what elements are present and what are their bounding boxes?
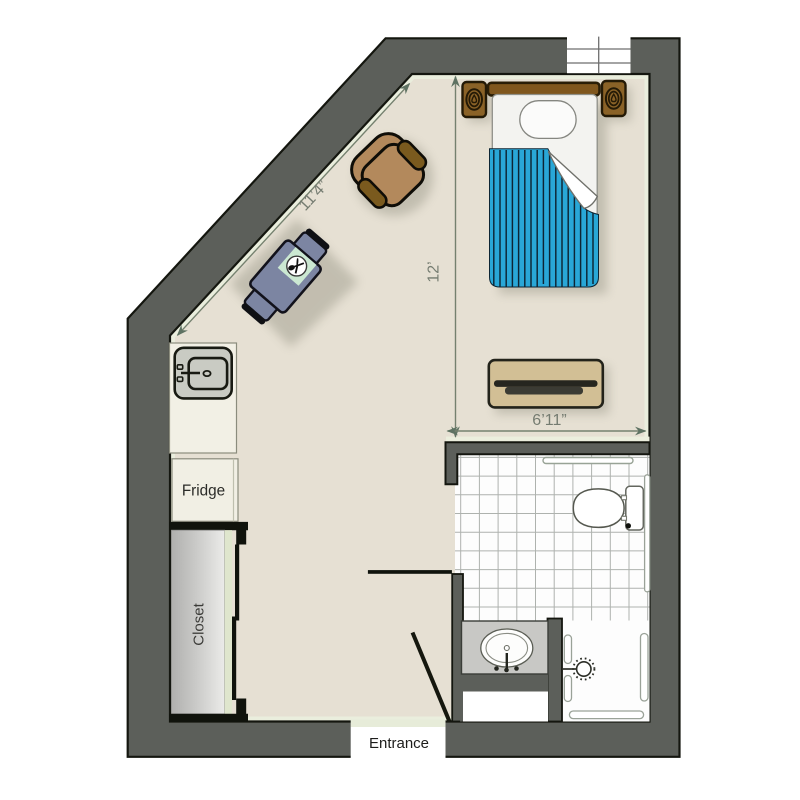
svg-text:6’11”: 6’11” [532,412,566,429]
svg-text:Entrance: Entrance [369,735,429,752]
svg-text:12’: 12’ [426,261,443,282]
svg-text:Closet: Closet [191,602,208,645]
svg-text:Fridge: Fridge [182,483,225,500]
